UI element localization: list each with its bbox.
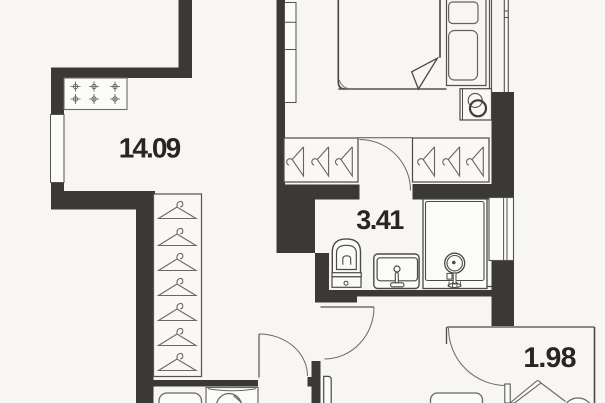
svg-text:14.09: 14.09 xyxy=(119,133,181,164)
svg-text:1.98: 1.98 xyxy=(523,342,575,374)
svg-text:3.41: 3.41 xyxy=(356,205,404,235)
